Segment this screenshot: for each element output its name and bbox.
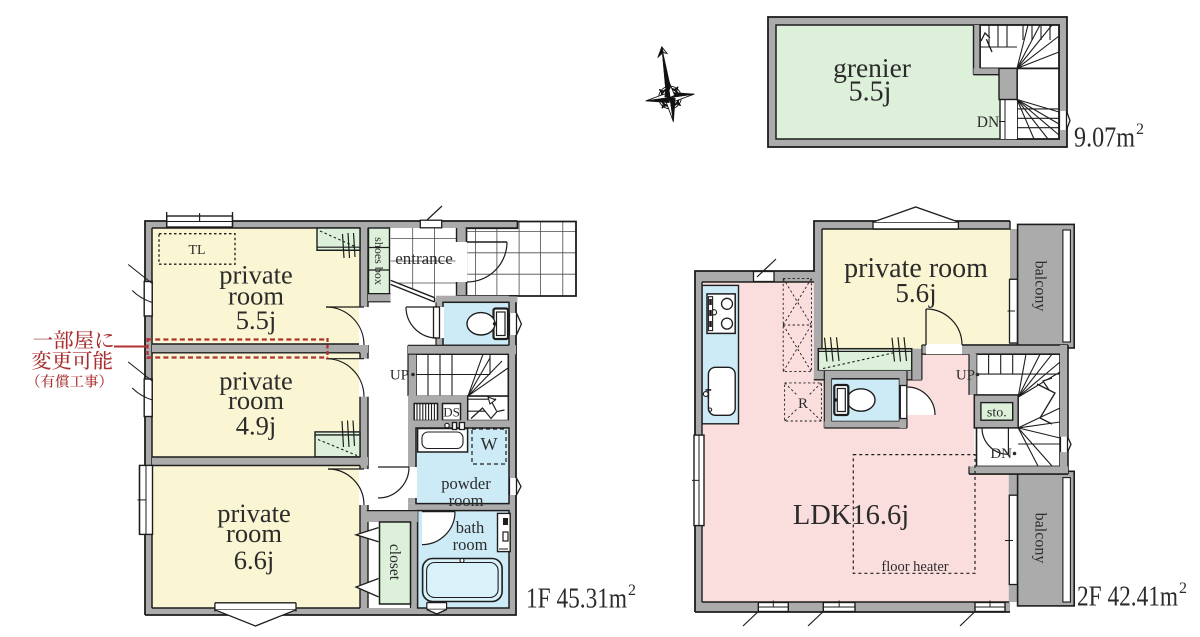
svg-text:room: room [453,535,488,554]
svg-text:UP: UP [390,368,409,384]
svg-text:5.5j: 5.5j [236,305,277,335]
svg-text:DN: DN [990,446,1012,462]
svg-text:LDK16.6j: LDK16.6j [793,500,909,531]
svg-text:floor heater: floor heater [881,559,948,575]
svg-text:DS: DS [443,405,460,420]
svg-text:W: W [481,434,498,454]
svg-text:closet: closet [386,544,403,581]
svg-text:2F 42.41m: 2F 42.41m [1077,581,1178,613]
svg-text:6.6j: 6.6j [234,545,275,575]
svg-text:2: 2 [628,582,636,599]
svg-text:4.9j: 4.9j [236,410,277,440]
svg-text:1F 45.31m: 1F 45.31m [526,583,627,615]
svg-text:balcony: balcony [1032,513,1049,564]
svg-text:entrance: entrance [395,249,453,268]
svg-text:DN: DN [977,114,999,131]
svg-text:UP: UP [956,368,975,384]
svg-text:5.6j: 5.6j [895,278,936,308]
svg-text:shoes box: shoes box [372,237,386,285]
svg-text:2: 2 [1136,121,1144,138]
svg-text:TL: TL [188,243,205,258]
svg-text:R: R [798,396,808,412]
svg-text:5.5j: 5.5j [849,77,892,108]
svg-text:room: room [449,491,484,510]
svg-text:room: room [226,518,282,548]
svg-text:sto.: sto. [987,406,1007,421]
svg-text:2: 2 [1179,580,1187,597]
svg-text:balcony: balcony [1032,261,1049,312]
svg-text:9.07m: 9.07m [1074,122,1135,154]
